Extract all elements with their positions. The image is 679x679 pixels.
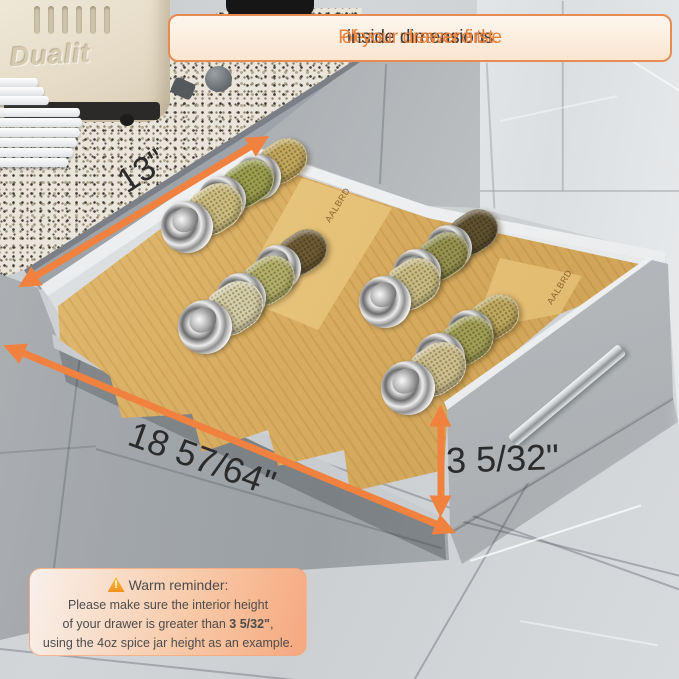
plate xyxy=(0,118,82,127)
toaster-brand: Dualit xyxy=(9,38,92,73)
banner-text-orange: of your drawer first. xyxy=(342,27,498,49)
product-dimension-image: AALBRD AALBRD Dualit 13" 18 57/64" 3 5/3… xyxy=(0,0,679,679)
reminder-line3: using the 4oz spice jar height as an exa… xyxy=(30,634,306,653)
reminder-line1: Please make sure the interior height xyxy=(30,596,306,615)
height-dimension-label: 3 5/32" xyxy=(445,436,559,482)
plate xyxy=(0,138,77,147)
toaster-slot xyxy=(90,6,96,34)
warning-icon xyxy=(108,577,125,592)
toaster-foot xyxy=(120,114,134,126)
plate xyxy=(0,148,73,157)
height-dimension-arrow xyxy=(438,425,445,498)
reminder-height-value: 3 5/32" xyxy=(229,617,270,631)
plate xyxy=(0,78,38,87)
reminder-title: Warm reminder: xyxy=(129,577,229,593)
toaster-slot xyxy=(48,6,54,34)
plate xyxy=(0,96,49,105)
toaster-slot xyxy=(62,6,68,34)
warm-reminder-box: Warm reminder: Please make sure the inte… xyxy=(29,568,307,656)
plate xyxy=(0,87,44,96)
measure-warning-banner: Please measure the inside dimensions of … xyxy=(168,14,672,62)
kettle-knob xyxy=(205,66,232,92)
toaster-slot xyxy=(76,6,82,34)
toaster-slot xyxy=(34,6,40,34)
reminder-title-row: Warm reminder: xyxy=(30,576,306,596)
toaster-slot xyxy=(104,6,110,34)
reminder-line2-text: of your drawer is greater than xyxy=(63,617,230,631)
plate xyxy=(0,158,68,167)
reminder-line2: of your drawer is greater than 3 5/32", xyxy=(30,615,306,634)
reminder-line2-comma: , xyxy=(270,617,273,631)
plate xyxy=(0,108,80,117)
plate xyxy=(0,128,80,137)
